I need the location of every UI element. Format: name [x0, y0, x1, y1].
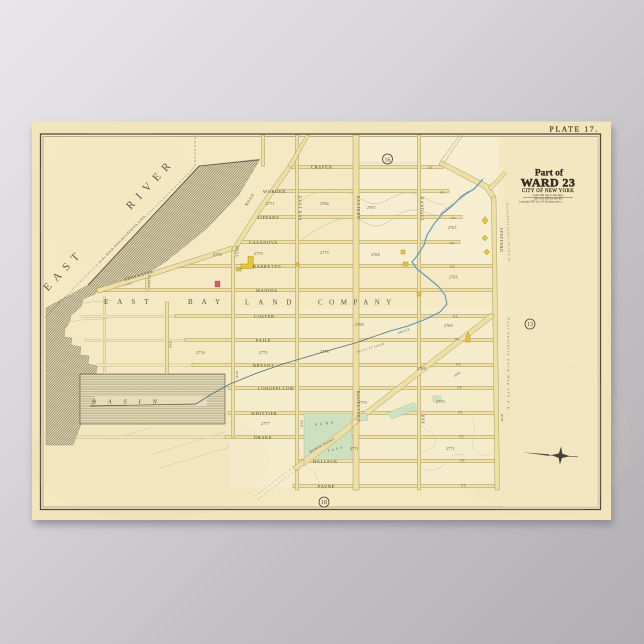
svg-text:DRAKE: DRAKE: [254, 435, 272, 440]
svg-text:CASANOVA: CASANOVA: [249, 240, 278, 245]
svg-text:ST.: ST.: [460, 459, 466, 463]
svg-text:ST.: ST.: [440, 190, 446, 194]
svg-text:MANIDA: MANIDA: [256, 288, 278, 293]
svg-text:ST.: ST.: [453, 315, 459, 319]
svg-text:FAILE: FAILE: [256, 338, 271, 343]
svg-text:2776: 2776: [213, 253, 222, 257]
svg-text:2769: 2769: [355, 323, 364, 327]
svg-text:2776: 2776: [196, 351, 205, 355]
svg-text:2770: 2770: [436, 400, 445, 404]
svg-text:PAYNE: PAYNE: [318, 484, 335, 489]
svg-text:SPOFFORD: SPOFFORD: [499, 228, 503, 253]
svg-text:2770: 2770: [358, 401, 367, 405]
svg-text:2768: 2768: [371, 253, 380, 257]
svg-text:16: 16: [385, 157, 391, 163]
svg-text:BARRETTO: BARRETTO: [253, 264, 281, 269]
svg-text:ST.: ST.: [461, 484, 467, 488]
svg-text:RYAWA: RYAWA: [147, 275, 150, 288]
svg-text:2773: 2773: [320, 350, 329, 354]
svg-text:2777: 2777: [261, 422, 270, 426]
svg-text:2773: 2773: [320, 251, 329, 255]
svg-text:2771: 2771: [446, 447, 455, 451]
svg-text:ST.: ST.: [451, 216, 457, 220]
svg-text:EASTERN: EASTERN: [356, 196, 361, 220]
svg-text:AVE: AVE: [235, 371, 239, 379]
svg-text:EAST: EAST: [104, 298, 158, 306]
svg-text:HALLECK: HALLECK: [313, 459, 338, 464]
svg-text:BOULEVARD: BOULEVARD: [356, 391, 361, 422]
svg-text:2767: 2767: [367, 206, 376, 210]
svg-text:ST.: ST.: [458, 411, 464, 415]
svg-text:2773: 2773: [259, 351, 268, 355]
svg-text:AVE: AVE: [500, 414, 504, 422]
svg-text:COMPANY: COMPANY: [318, 299, 398, 307]
svg-text:BRYANT: BRYANT: [253, 363, 274, 368]
svg-text:Port Spofford Farm Map 348 E.R: Port Spofford Farm Map 348 E.R.: [507, 317, 511, 413]
svg-text:2771: 2771: [350, 447, 359, 451]
svg-text:2766: 2766: [320, 202, 329, 206]
svg-text:AVE: AVE: [300, 420, 304, 428]
svg-text:ST.: ST.: [459, 435, 465, 439]
svg-text:AVE: AVE: [169, 341, 173, 349]
svg-text:WORDEN: WORDEN: [263, 189, 286, 194]
svg-text:ST.: ST.: [457, 386, 463, 390]
svg-text:ST.: ST.: [428, 165, 434, 169]
svg-text:2769: 2769: [417, 367, 426, 371]
svg-text:COSTER: COSTER: [254, 314, 275, 319]
svg-text:ST.: ST.: [456, 363, 462, 367]
svg-text:2769: 2769: [444, 324, 453, 328]
svg-text:13: 13: [527, 322, 533, 328]
svg-text:ST.: ST.: [450, 241, 456, 245]
svg-text:WHITTIER: WHITTIER: [251, 411, 277, 416]
svg-text:Scale 200 feet to the Inch.: Scale 200 feet to the Inch.: [532, 193, 564, 197]
svg-text:2771: 2771: [266, 202, 275, 206]
svg-text:LAND: LAND: [245, 299, 300, 307]
svg-text:LONGFELLOW: LONGFELLOW: [258, 386, 295, 391]
svg-text:WARD 23: WARD 23: [521, 176, 575, 190]
svg-text:EAST BAY: EAST BAY: [298, 196, 303, 221]
svg-text:CRAVEN: CRAVEN: [311, 165, 332, 170]
svg-text:BAY: BAY: [188, 298, 229, 306]
svg-text:18: 18: [321, 500, 327, 506]
svg-text:BASIN: BASIN: [92, 399, 169, 406]
svg-text:Copyright 1897 by G.W. Bromley: Copyright 1897 by G.W. Bromley and Co.: [519, 201, 563, 204]
svg-text:RANDALL: RANDALL: [420, 197, 425, 222]
svg-text:2766: 2766: [449, 276, 458, 280]
svg-text:2767: 2767: [448, 226, 457, 230]
svg-text:PLATE 17.: PLATE 17.: [550, 125, 599, 134]
svg-text:TIFFANY: TIFFANY: [257, 215, 280, 220]
svg-text:BAY: BAY: [421, 415, 425, 425]
svg-text:ST.: ST.: [450, 264, 456, 268]
svg-text:HELL: HELL: [235, 246, 239, 258]
svg-text:ST.: ST.: [455, 338, 461, 342]
svg-text:2775: 2775: [254, 252, 263, 256]
